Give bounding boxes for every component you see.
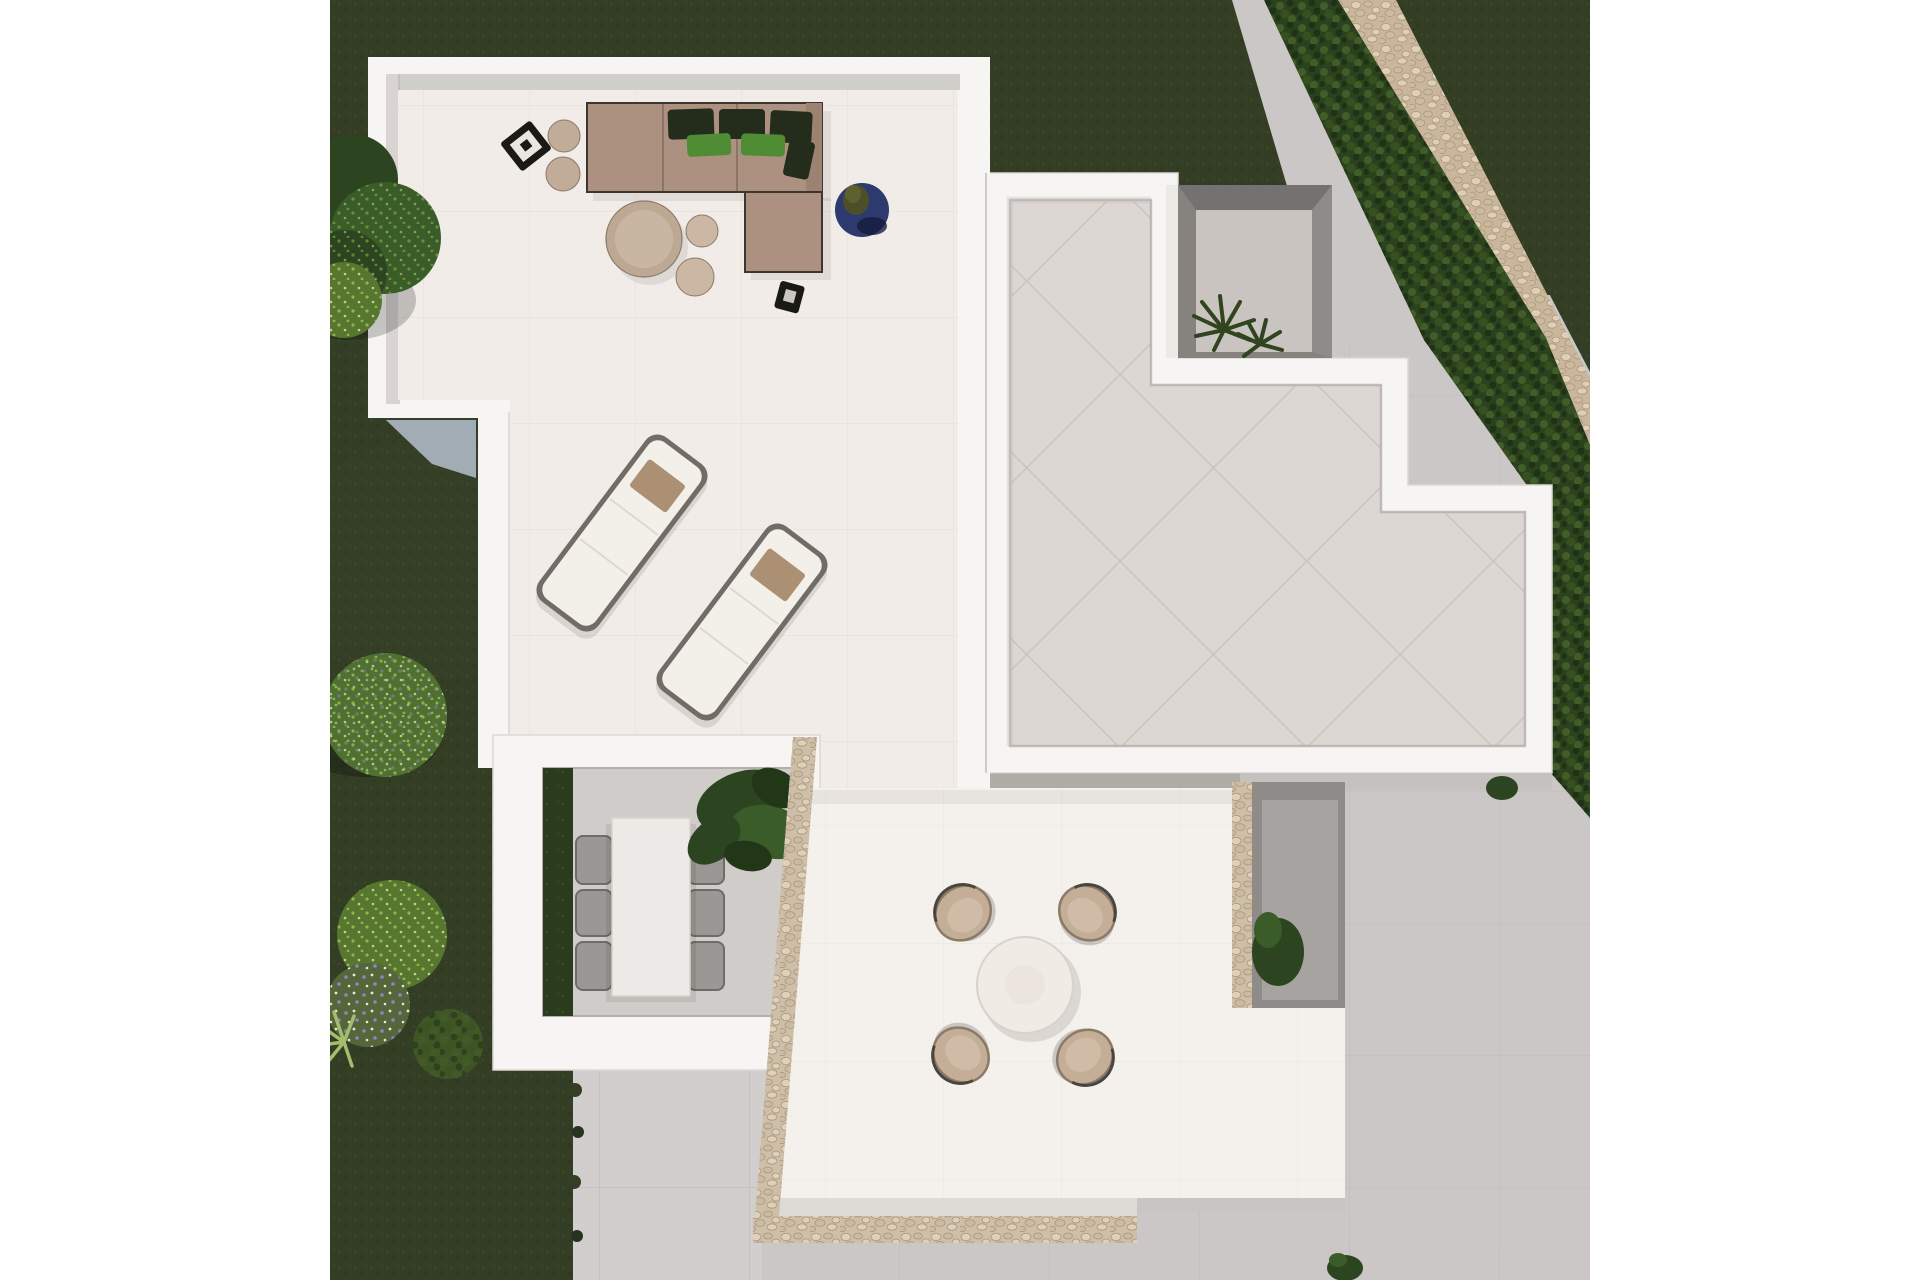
round-coffee-table-top xyxy=(615,210,673,268)
render-content xyxy=(280,0,1590,1280)
right-lightwell xyxy=(1232,782,1345,1008)
sofa-chaise-module xyxy=(745,192,822,272)
potted-plant-top xyxy=(845,185,861,203)
parapet-inner-face-north xyxy=(398,74,960,90)
pavement-plant xyxy=(1486,776,1518,800)
parapet-west-lower xyxy=(478,395,510,768)
courtyard-north-wall xyxy=(1178,185,1332,210)
terrace-c-roof-shadow xyxy=(800,790,1248,804)
patio-planting-bed-texture xyxy=(543,768,573,1016)
round-topiary-flowers xyxy=(323,653,447,777)
small-pouf xyxy=(686,215,718,247)
green-cushion xyxy=(686,133,731,157)
small-pouf xyxy=(676,258,714,296)
plant-shadow-on-mat xyxy=(857,217,887,235)
pavement-plant xyxy=(1329,1253,1347,1267)
grass-tuft xyxy=(568,1083,582,1097)
courtyard-coping xyxy=(1166,185,1178,358)
stone-wall-south-texture xyxy=(753,1216,1137,1243)
terrace-c-east-fascia xyxy=(1137,1198,1345,1212)
lightwell-stone-texture xyxy=(1232,782,1252,1008)
recessed-courtyard xyxy=(1166,185,1332,358)
grass-tuft xyxy=(567,1175,581,1189)
grass-tuft xyxy=(572,1126,584,1138)
lightwell-plant xyxy=(1254,912,1282,948)
villa-top-view-render xyxy=(0,0,1920,1280)
round-table-center xyxy=(1005,965,1045,1005)
olive-bush-texture xyxy=(413,1009,483,1079)
pouf xyxy=(548,120,580,152)
terrace-c-bevel xyxy=(777,1198,1137,1216)
purple-flower-bush-texture xyxy=(326,963,410,1047)
courtyard-east-wall xyxy=(1312,185,1332,358)
pouf xyxy=(546,157,580,191)
render-stage xyxy=(0,0,1920,1280)
grass-tuft xyxy=(571,1230,583,1242)
green-cushion xyxy=(741,133,786,157)
patio-dining-table xyxy=(612,818,690,996)
